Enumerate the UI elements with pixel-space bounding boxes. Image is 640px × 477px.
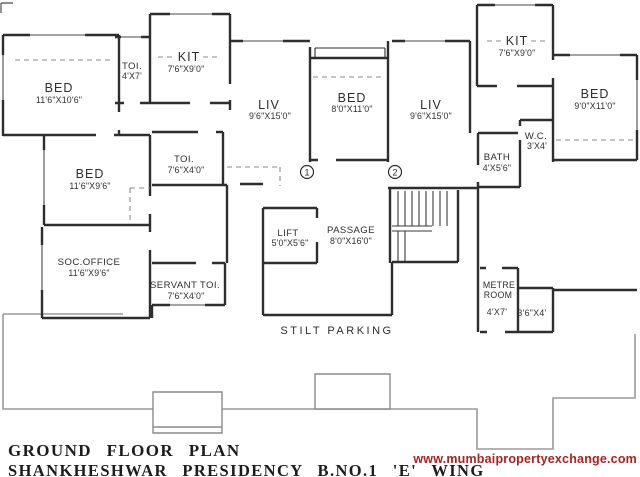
plan-title: GROUND FLOOR PLAN <box>8 441 241 461</box>
room-label-passage: PASSAGE <box>327 225 375 236</box>
room-dims-soc-office: 11'6"X9'6" <box>68 268 109 278</box>
room-label-toi-mid: TOI. <box>174 154 194 165</box>
parking-column-left <box>153 392 222 433</box>
room-dims-bed-right: 9'0"X11'0" <box>574 101 615 111</box>
room-label-bed-top-left: BED <box>45 81 74 95</box>
unit-marker-1: 1 <box>301 166 314 179</box>
website-link[interactable]: www.mumbaipropertyexchange.com <box>413 452 637 466</box>
room-dims-bed-top-left: 11'6"X10'6" <box>36 95 82 105</box>
room-label-servant-toi: SERVANT TOI. <box>150 280 220 291</box>
unit-marker-2-number: 2 <box>392 168 397 178</box>
room-label-kitchen-right: KIT <box>506 34 528 48</box>
unit-marker-2: 2 <box>389 166 402 179</box>
room-dims-servant-toi: 7'6"X4'0" <box>168 291 205 301</box>
room-label-metre-room-line2: ROOM <box>484 290 513 300</box>
room-dims-metre-room: 4'X7' <box>487 307 508 317</box>
room-dims-wc: 3'X4' <box>527 141 547 151</box>
room-label-bath: BATH <box>484 152 510 163</box>
floor-plan-page: BED 11'6"X10'6" TOI. 4'X7' KIT 7'6"X9'0"… <box>0 0 640 477</box>
room-label-bed-right: BED <box>581 87 610 101</box>
room-dims-passage: 8'0"X16'0" <box>330 236 372 246</box>
room-dims-toi-top-left: 4'X7' <box>122 71 142 81</box>
room-label-soc-office: SOC.OFFICE <box>58 257 121 268</box>
staircase-treads <box>392 191 447 261</box>
parking-column-center <box>315 374 390 409</box>
room-dims-bed-left: 11'6"X9'6" <box>69 181 110 191</box>
room-label-bed-mid: BED <box>338 91 367 105</box>
unit-marker-1-number: 1 <box>304 168 309 178</box>
room-label-living-right: LIV <box>420 98 442 112</box>
room-dims-bed-mid: 8'0"X11'0" <box>331 104 372 114</box>
room-dims-bath: 4'X5'6" <box>483 163 511 173</box>
balcony-strip <box>315 48 385 58</box>
room-dims-kitchen-right: 7'6"X9'0" <box>499 48 536 58</box>
room-label-living-left: LIV <box>258 98 280 112</box>
room-label-kitchen-left: KIT <box>178 50 200 64</box>
room-label-metre-room-line1: METRE <box>483 280 515 290</box>
room-label-bed-left: BED <box>76 167 105 181</box>
room-dims-kitchen-left: 7'6"X9'0" <box>168 64 205 74</box>
page-corner-mark <box>1 3 13 13</box>
area-label-stilt-parking: STILT PARKING <box>280 325 393 337</box>
floor-plan-drawing: BED 11'6"X10'6" TOI. 4'X7' KIT 7'6"X9'0"… <box>0 0 640 477</box>
room-dims-lift: 5'0"X5'6" <box>272 238 309 248</box>
room-dims-toi-mid: 7'6"X4'0" <box>168 165 205 175</box>
room-dims-living-left: 9'6"X15'0" <box>249 111 291 121</box>
room-dims-store: 3'6"X4' <box>517 308 546 318</box>
room-dims-living-right: 9'6"X15'0" <box>410 111 452 121</box>
